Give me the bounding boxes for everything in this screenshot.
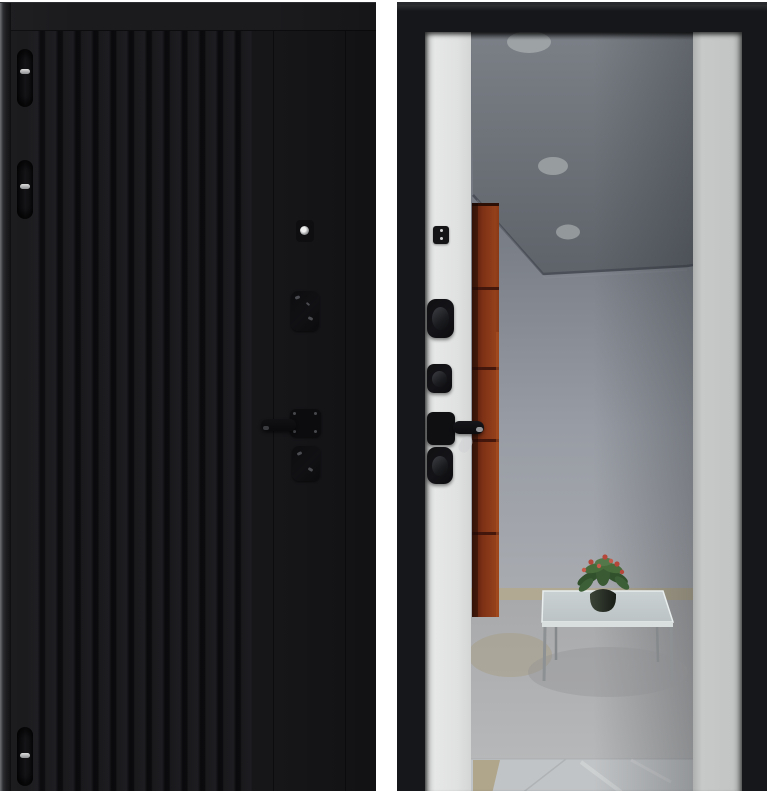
orange-cabinet	[472, 203, 499, 617]
latch-screw	[440, 229, 443, 232]
lower-thumbturn	[427, 447, 453, 484]
latch-screw	[440, 237, 443, 240]
lower-lock-escutcheon	[292, 446, 320, 481]
thumbturn-knob	[432, 456, 448, 476]
frame-gloss	[397, 5, 767, 11]
middle-hinge	[17, 160, 33, 219]
glint	[306, 302, 310, 306]
middle-thumbturn	[427, 364, 452, 393]
top-hinge	[17, 49, 33, 107]
hinge-pin-highlight	[20, 69, 30, 74]
interior-right-panel	[693, 32, 742, 791]
glint	[308, 467, 314, 472]
interior-handle-lever	[453, 421, 484, 434]
screw	[293, 412, 296, 415]
upper-lock-escutcheon	[291, 291, 319, 331]
mirror	[471, 32, 693, 791]
glint	[308, 316, 314, 321]
glint	[297, 451, 303, 456]
mirror-top-shade	[471, 32, 693, 40]
screw	[314, 430, 317, 433]
screw	[314, 412, 317, 415]
exterior-handle	[290, 409, 321, 437]
thumbturn-knob	[432, 371, 447, 387]
door-exterior-panel	[0, 2, 376, 791]
mirror-reflection-scene	[471, 32, 693, 791]
door-interior-panel	[397, 2, 767, 791]
table-shadow	[528, 647, 688, 697]
bottom-hinge	[17, 727, 33, 786]
interior-handle	[427, 412, 455, 445]
glint	[295, 295, 301, 300]
plant-pot	[590, 589, 616, 612]
thumbturn-knob	[432, 307, 449, 330]
screw	[293, 430, 296, 433]
upper-thumbturn	[427, 299, 454, 338]
night-latch	[433, 226, 449, 244]
exterior-handle-lever	[261, 419, 296, 431]
product-photo	[0, 0, 767, 791]
peephole-lens	[300, 226, 309, 235]
hinge-pin-highlight	[20, 753, 30, 758]
cylinder-peephole	[296, 220, 314, 242]
door-shading-overlay	[0, 3, 376, 791]
hinge-pin-highlight	[20, 184, 30, 189]
